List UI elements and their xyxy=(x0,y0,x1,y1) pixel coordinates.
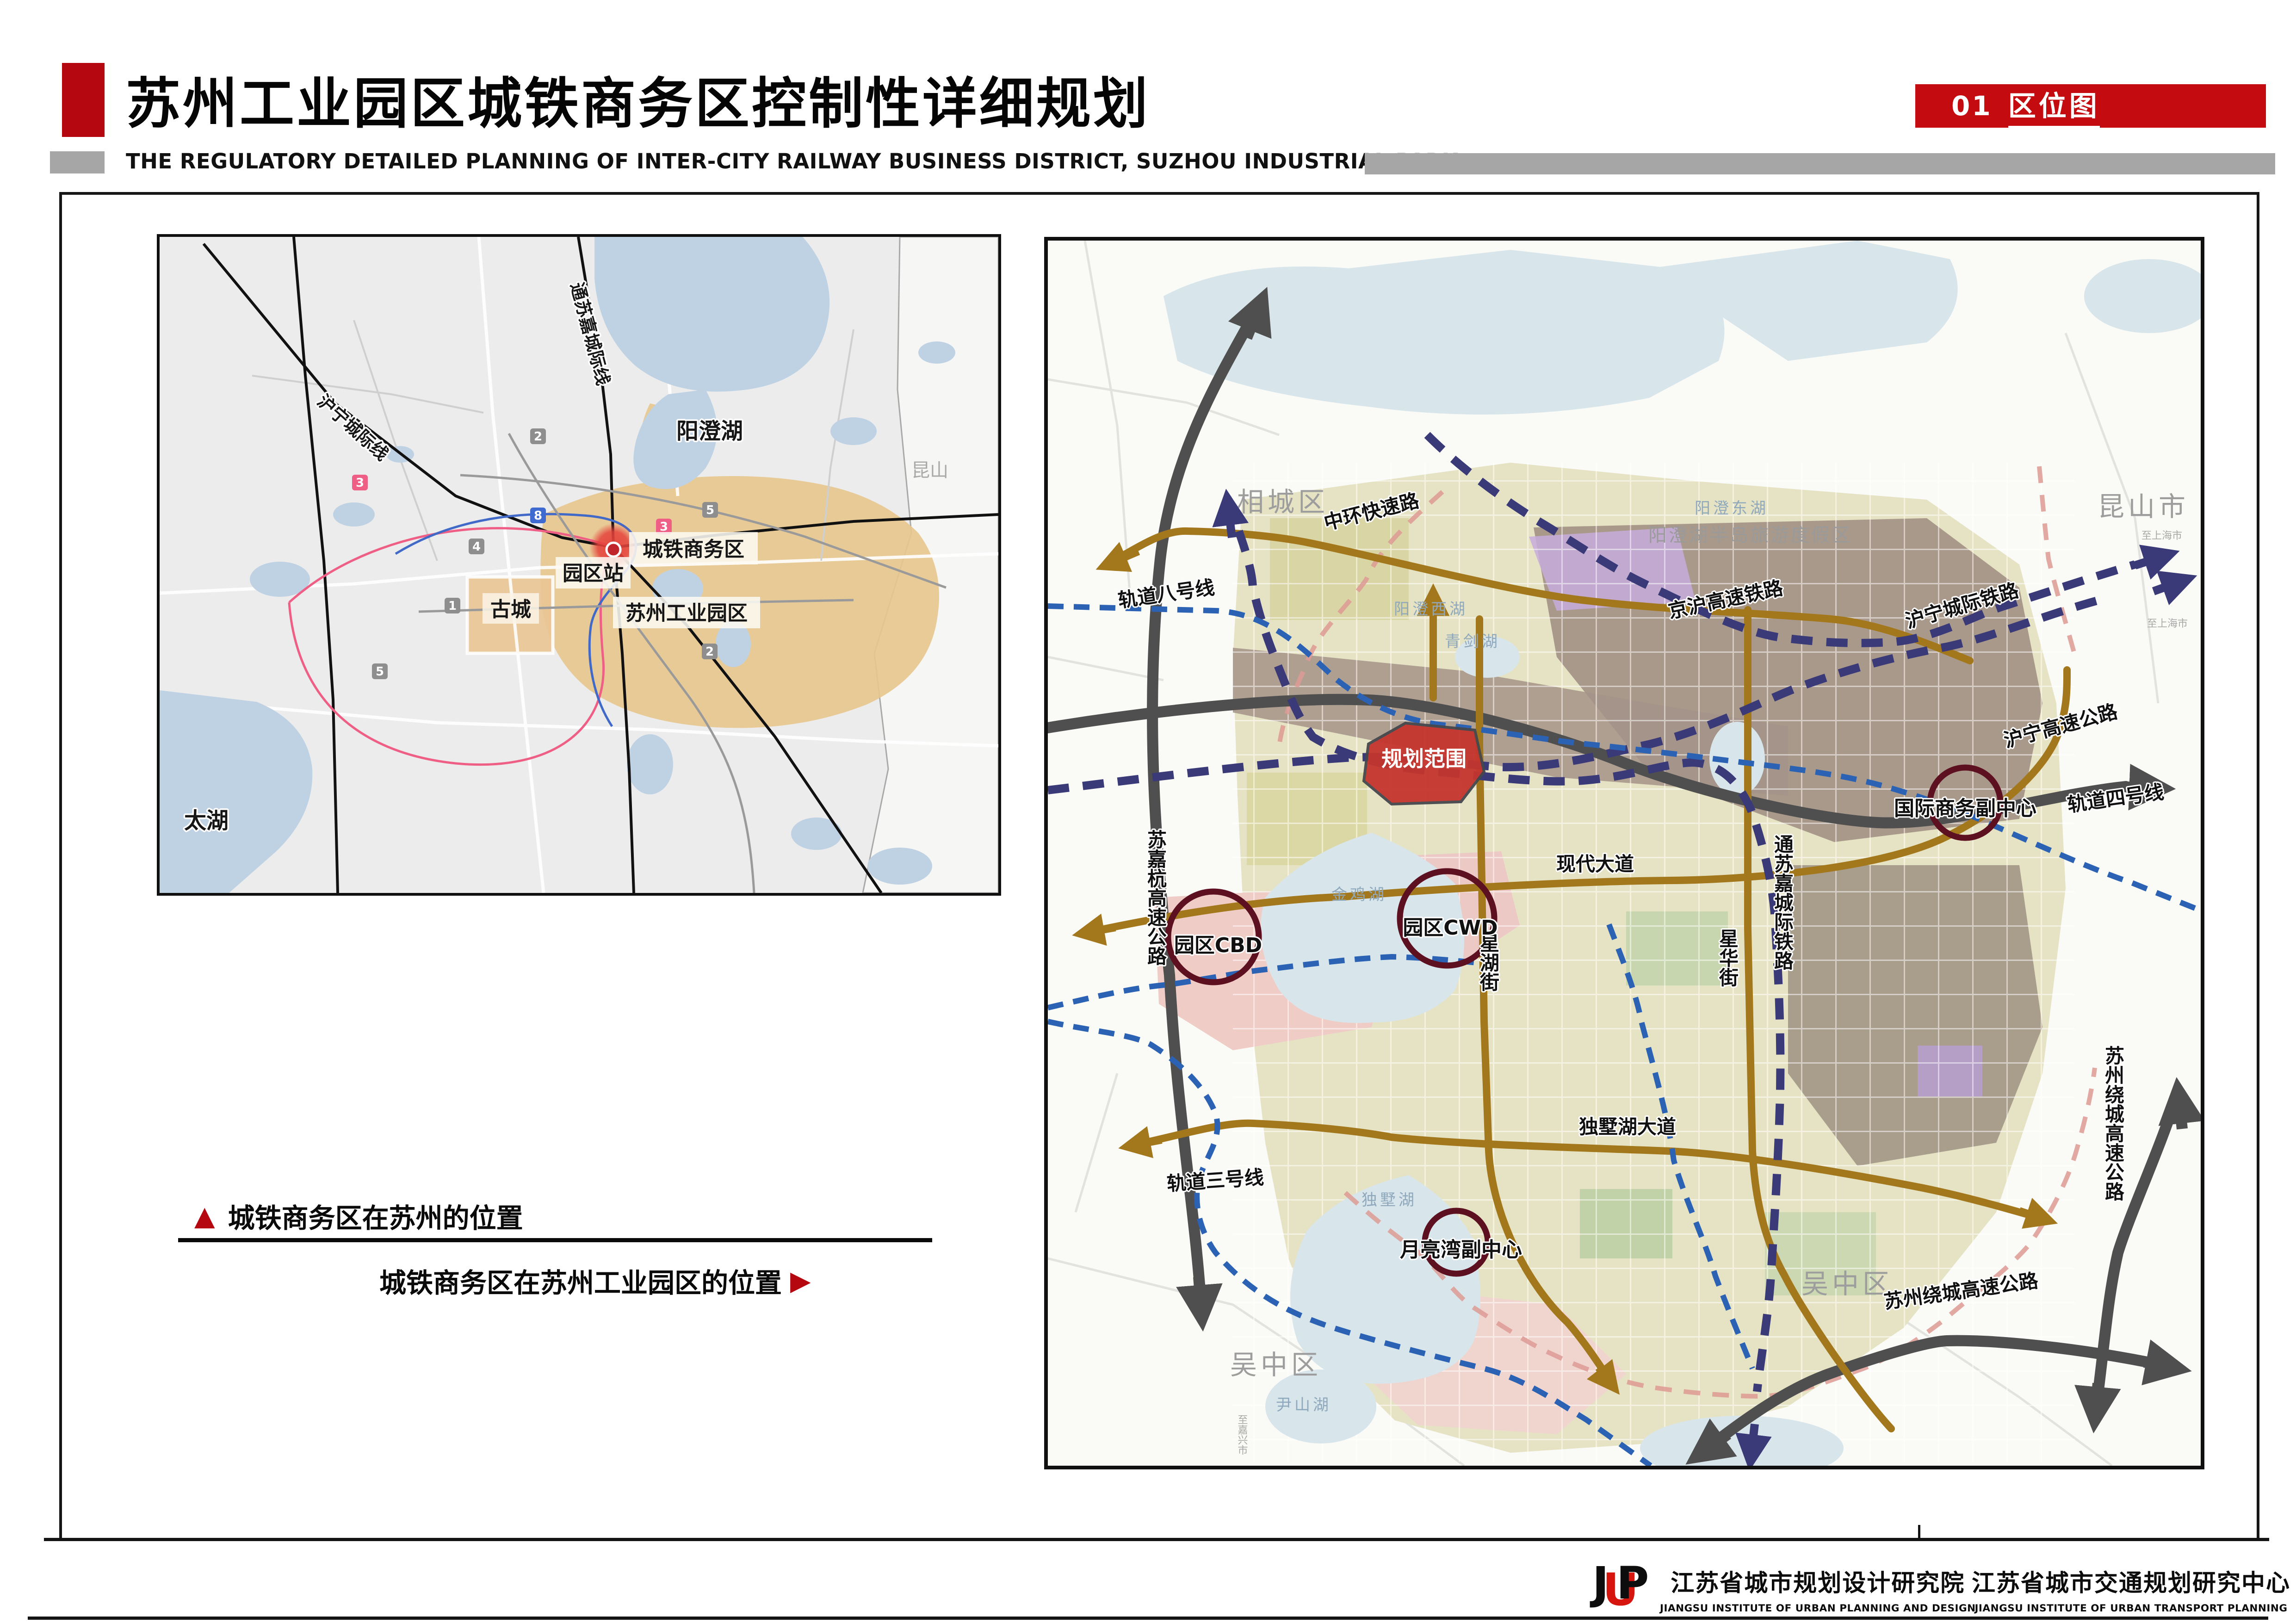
section-badge: 01 区位图 xyxy=(1915,84,2266,128)
metro-badge: 3 xyxy=(356,476,364,490)
caption1-text: 城铁商务区在苏州的位置 xyxy=(228,1196,523,1235)
institute-1: 江苏省城市规划设计研究院 JIANGSU INSTITUTE OF URBAN … xyxy=(1660,1564,1976,1614)
lake-yangcheng-west: 阳澄西湖 xyxy=(1394,600,1468,619)
district-wuzhong-east: 吴中区 xyxy=(1801,1268,1893,1300)
right-triangle-icon: ▶ xyxy=(790,1267,811,1294)
svg-text:古城: 古城 xyxy=(490,598,531,621)
lake-qingjian: 青剑湖 xyxy=(1445,632,1500,651)
suzhou-location-map-svg: 3 5 2 8 4 1 3 5 2 阳澄湖 城铁商务区 园区站 苏州工业园区 xyxy=(160,237,998,893)
svg-text:城铁商务区: 城铁商务区 xyxy=(643,538,744,561)
section-number: 01 xyxy=(1951,90,1993,122)
label-resort: 阳澄湖半岛旅游度假区 xyxy=(1648,525,1852,546)
page-title: 苏州工业园区城铁商务区控制性详细规划 xyxy=(126,59,1150,138)
district-kunshan: 昆山市 xyxy=(2098,491,2189,522)
subtitle-bar-right xyxy=(1365,153,2275,174)
label-old-city: 古城 xyxy=(483,593,539,624)
sip-location-map: 规划范围 相城区 昆山市 吴中区 吴中区 阳澄湖半岛旅游度假区 金鸡湖 独墅湖 … xyxy=(1044,237,2204,1469)
district-wuzhong-west: 吴中区 xyxy=(1230,1349,1322,1381)
center-cbd: 园区CBD xyxy=(1174,934,1262,957)
footer-tick xyxy=(1918,1525,1920,1538)
to-shanghai-2: 至上海市 xyxy=(2147,618,2188,630)
metro-badge: 2 xyxy=(706,645,714,659)
road-xiandai: 现代大道 xyxy=(1556,853,1634,875)
label-tai-lake: 太湖 xyxy=(184,808,229,834)
label-yangcheng-lake: 阳澄湖 xyxy=(676,418,743,444)
center-moonbay: 月亮湾副中心 xyxy=(1400,1238,1522,1262)
page-bottom-rule xyxy=(28,1617,2268,1620)
label-sip: 苏州工业园区 xyxy=(613,597,760,628)
lake-dushu: 独墅湖 xyxy=(1362,1191,1417,1209)
road-sujiahang: 苏嘉杭高速公路 xyxy=(1145,830,1167,966)
institute-2-cn: 江苏省城市交通规划研究中心 xyxy=(1972,1564,2290,1598)
to-jiaxing: 至嘉兴市 xyxy=(1236,1414,1248,1455)
metro-badge: 2 xyxy=(534,430,542,444)
jup-logo: J U P xyxy=(1592,1561,1652,1607)
suzhou-location-map: 3 5 2 8 4 1 3 5 2 阳澄湖 城铁商务区 园区站 苏州工业园区 xyxy=(157,234,1001,896)
to-shanghai-1: 至上海市 xyxy=(2141,530,2182,542)
label-park-station: 园区站 xyxy=(556,557,631,588)
metro-badge: 4 xyxy=(472,540,481,554)
caption-divider-rule xyxy=(178,1238,932,1242)
up-triangle-icon: ▲ xyxy=(194,1202,215,1229)
institute-1-cn: 江苏省城市规划设计研究院 xyxy=(1660,1564,1976,1598)
sip-location-map-svg: 规划范围 相城区 昆山市 吴中区 吴中区 阳澄湖半岛旅游度假区 金鸡湖 独墅湖 … xyxy=(1048,241,2201,1466)
caption-sip-position: 城铁商务区在苏州工业园区的位置 ▶ xyxy=(379,1261,811,1300)
metro-badge: 8 xyxy=(534,509,542,523)
institute-2-en: JIANGSU INSTITUTE OF URBAN TRANSPORT PLA… xyxy=(1972,1603,2290,1614)
institute-1-en: JIANGSU INSTITUTE OF URBAN PLANNING AND … xyxy=(1660,1603,1976,1614)
metro-badge: 3 xyxy=(660,520,668,534)
svg-text:园区站: 园区站 xyxy=(563,562,624,585)
center-cwd: 园区CWD xyxy=(1403,916,1498,940)
plan-sheet: 苏州工业园区城铁商务区控制性详细规划 THE REGULATORY DETAIL… xyxy=(0,0,2296,1623)
section-label: 区位图 xyxy=(2008,84,2100,128)
metro-badge: 1 xyxy=(448,599,457,613)
center-intl: 国际商务副中心 xyxy=(1894,797,2036,820)
road-xinghu: 星湖街 xyxy=(1477,933,1500,991)
station-dot xyxy=(606,543,620,557)
metro-badge: 5 xyxy=(376,665,384,679)
svg-text:苏州工业园区: 苏州工业园区 xyxy=(625,601,748,625)
lake-jinji: 金鸡湖 xyxy=(1331,886,1387,904)
caption2-text: 城铁商务区在苏州工业园区的位置 xyxy=(379,1261,782,1300)
road-dushuhu: 独墅湖大道 xyxy=(1579,1115,1676,1138)
lake-yangcheng-east: 阳澄东湖 xyxy=(1695,499,1769,518)
label-kunshan-left: 昆山 xyxy=(911,460,948,481)
logo-letter-p: P xyxy=(1616,1561,1649,1605)
rail-tongsujia: 通苏嘉城际铁路 xyxy=(1771,834,1794,970)
label-ctbd: 城铁商务区 xyxy=(629,532,758,564)
district-xiangcheng: 相城区 xyxy=(1237,486,1329,518)
caption-suzhou-position: ▲ 城铁商务区在苏州的位置 xyxy=(194,1196,523,1235)
road-raocheng-east: 苏州绕城高速公路 xyxy=(2102,1046,2125,1201)
metro-badge: 5 xyxy=(706,503,714,517)
page-subtitle-en: THE REGULATORY DETAILED PLANNING OF INTE… xyxy=(126,149,1458,173)
road-xinghua: 星华街 xyxy=(1716,929,1739,987)
title-accent-square xyxy=(62,63,105,137)
institute-2: 江苏省城市交通规划研究中心 JIANGSU INSTITUTE OF URBAN… xyxy=(1972,1564,2290,1614)
planning-scope-label: 规划范围 xyxy=(1381,746,1467,771)
subtitle-bar-left xyxy=(50,151,105,173)
lake-yinshan: 尹山湖 xyxy=(1276,1396,1331,1414)
footer-rule xyxy=(44,1538,2269,1541)
